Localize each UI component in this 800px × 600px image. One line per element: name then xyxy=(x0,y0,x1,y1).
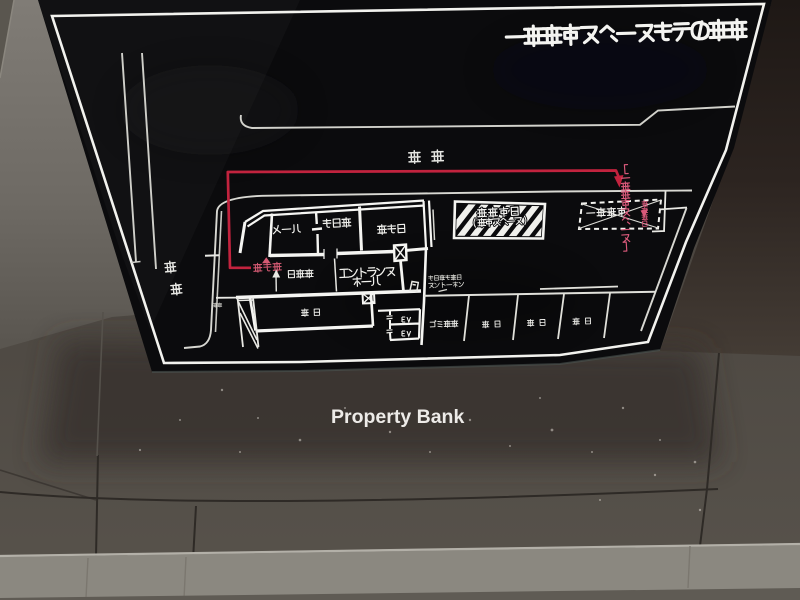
svg-text:Property Bank: Property Bank xyxy=(331,406,464,428)
